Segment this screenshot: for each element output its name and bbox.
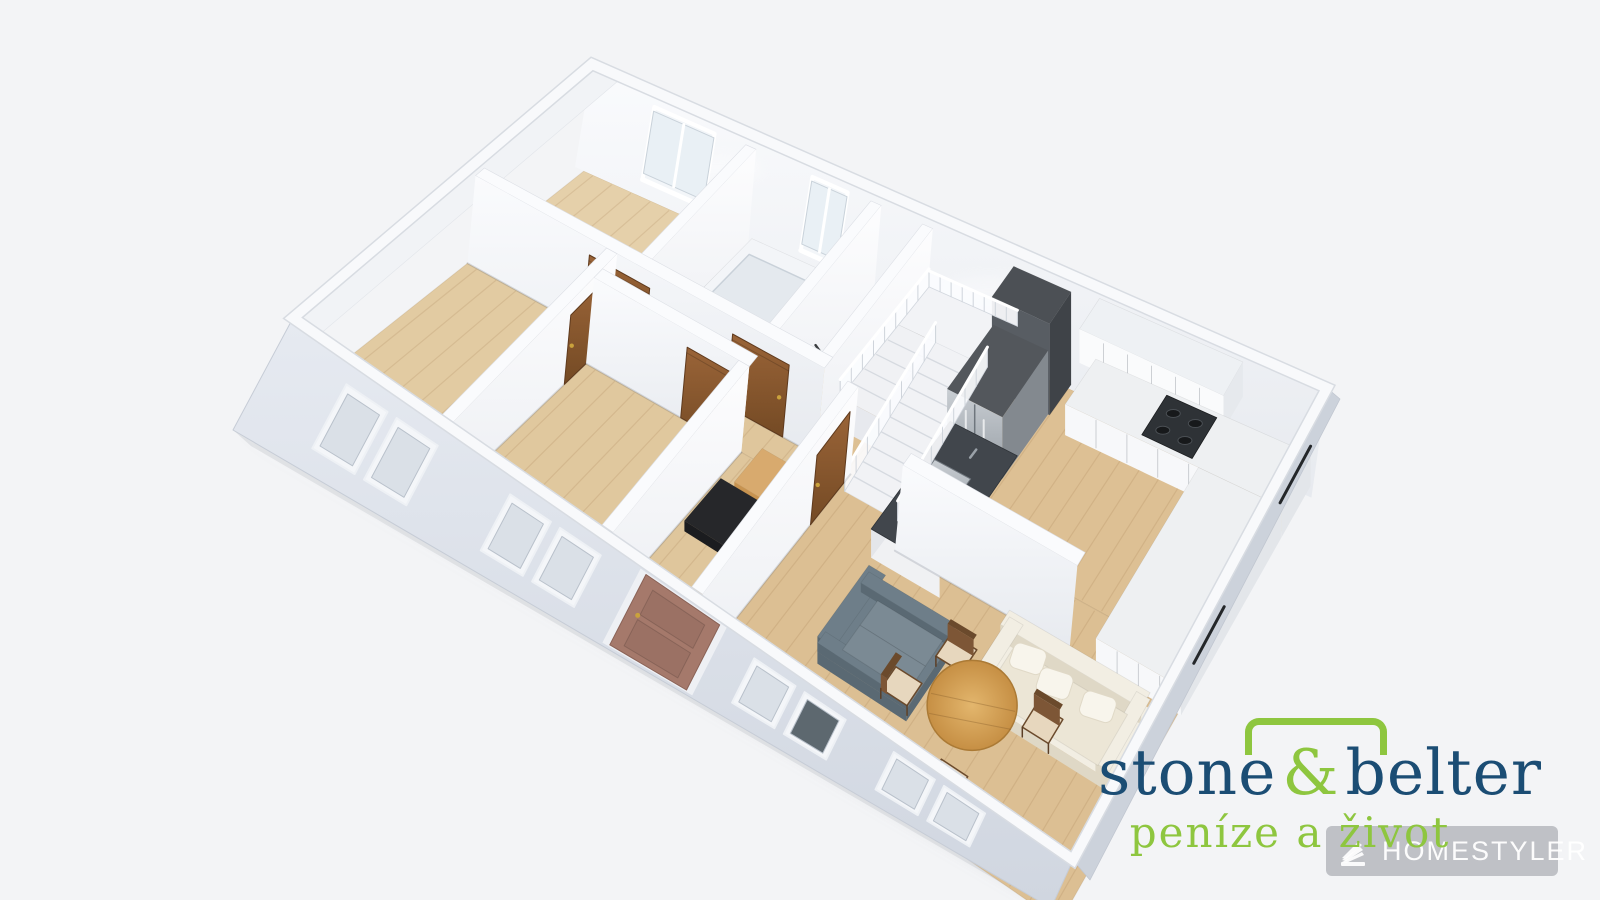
dining-table xyxy=(927,660,1017,750)
homestyler-logo-icon xyxy=(1336,832,1374,870)
watermark-text: HOMESTYLER xyxy=(1382,836,1588,867)
floorplan-3d-page: stone&belter peníze a život HOMESTYLER xyxy=(0,0,1600,900)
homestyler-watermark: HOMESTYLER xyxy=(1326,826,1558,876)
floorplan-3d-render xyxy=(0,0,1600,900)
